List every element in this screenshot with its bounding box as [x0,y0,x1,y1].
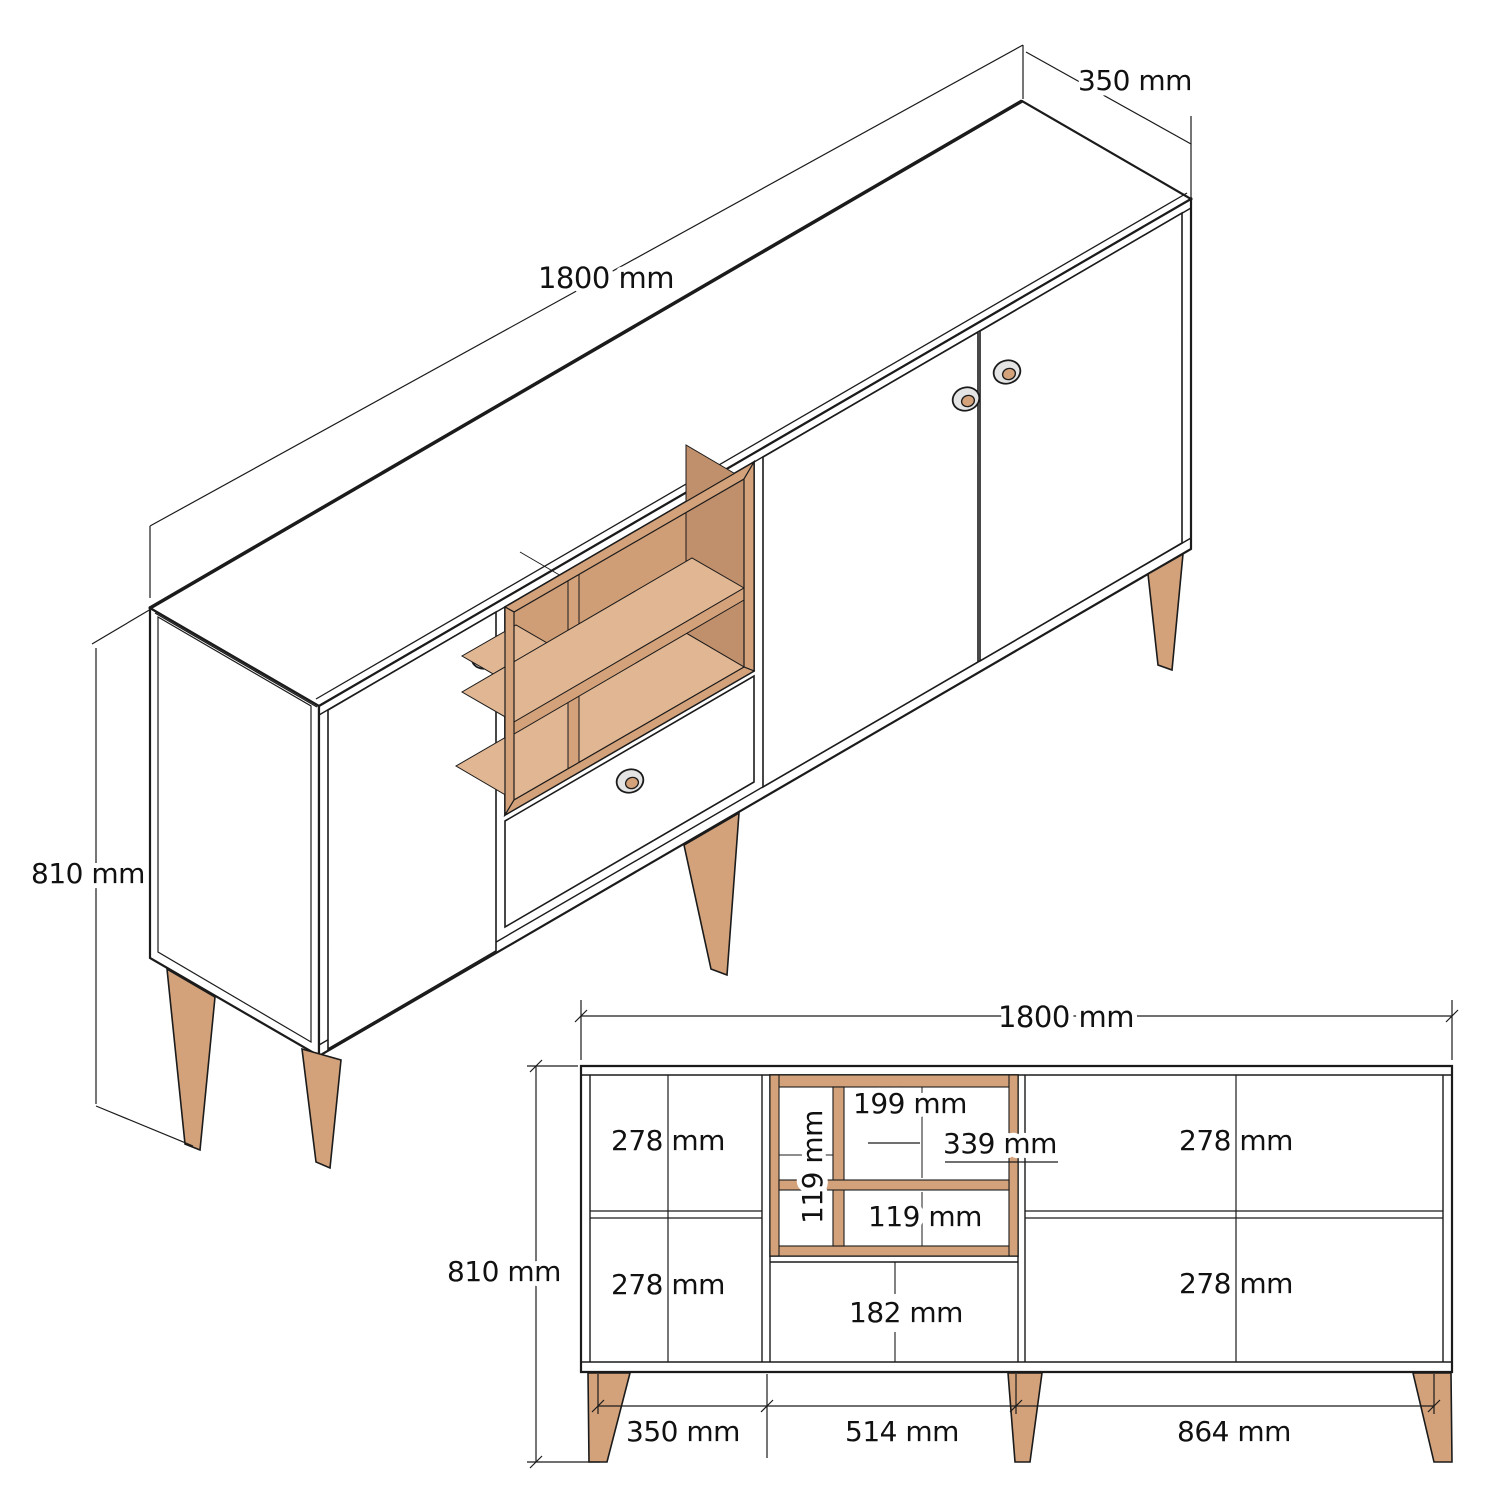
fv-niche-top-rail [770,1075,1018,1087]
fv-bottom-right-label: 864 mm [1177,1415,1291,1448]
fv-niche-bottom-label: 119 mm [868,1200,982,1233]
fv-left-leg [588,1373,630,1462]
fv-left-top-label: 278 mm [611,1124,725,1157]
fv-right-bottom-label: 278 mm [1179,1267,1293,1300]
furniture-dimension-drawing: 1800 mm 350 mm 810 mm [0,0,1500,1500]
iso-height-label: 810 mm [31,857,145,890]
fv-height-dimension: 810 mm [447,1060,600,1468]
fv-right-leg [1413,1373,1452,1462]
fv-left-bottom-label: 278 mm [611,1268,725,1301]
fv-drawer-label: 182 mm [849,1296,963,1329]
fv-niche-left-rail [770,1075,779,1256]
iso-length-label: 1800 mm [538,261,674,295]
fv-niche-bottom-rail [770,1246,1018,1256]
fv-niche-column-label: 119 mm [796,1110,829,1224]
technical-drawing-page: 1800 mm 350 mm 810 mm [0,0,1500,1500]
fv-niche-right-rail [1009,1075,1018,1256]
fv-height-label: 810 mm [447,1255,561,1288]
fv-niche-vertical-divider [833,1087,844,1246]
fv-niche-right-width-label: 339 mm [943,1127,1057,1160]
fv-width-dimension: 1800 mm [575,1000,1458,1060]
fv-center-leg [1008,1373,1042,1462]
fv-bottom-left-label: 350 mm [626,1415,740,1448]
iso-front-left-leg [302,1049,341,1168]
iso-niche-left-rail [505,607,514,815]
iso-front-right-leg [1148,554,1183,670]
iso-niche-right-rail [744,462,754,671]
iso-depth-label: 350 mm [1078,64,1192,97]
iso-height-extension-bottom [96,1106,193,1146]
iso-height-extension-top [92,609,151,644]
fv-width-label: 1800 mm [998,1000,1134,1034]
front-view: 1800 mm 810 mm 350 mm 514 mm 864 mm 278 … [447,1000,1458,1468]
iso-back-left-leg [167,969,215,1150]
fv-niche-top-width-label: 199 mm [853,1087,967,1120]
fv-bottom-center-label: 514 mm [845,1415,959,1448]
fv-right-top-label: 278 mm [1179,1124,1293,1157]
